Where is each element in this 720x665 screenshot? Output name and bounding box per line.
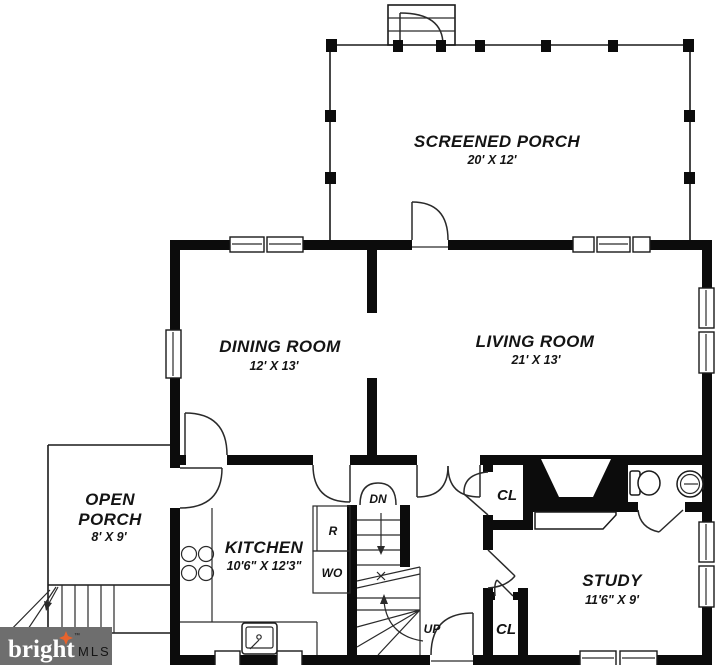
watermark-mls: MLS (78, 644, 111, 659)
stairs-up-label: UP (424, 622, 442, 636)
porch-to-living-door (412, 202, 448, 247)
dining-to-kitchen-door (313, 465, 350, 502)
open-porch-label-2: PORCH (78, 510, 142, 529)
living-room-label: LIVING ROOM (476, 332, 595, 351)
living-window-top (573, 237, 650, 252)
bathroom-door (638, 510, 683, 532)
study-window-right (699, 522, 714, 607)
toilet (630, 471, 660, 495)
porch-steps-arrow (44, 587, 58, 611)
dining-window-left (166, 330, 181, 378)
lower-closet-door (495, 580, 513, 596)
brightmls-watermark: bright ™ MLS (0, 627, 112, 665)
open-porch-outline (0, 445, 170, 656)
dining-window (230, 237, 303, 252)
watermark-trademark: ™ (74, 632, 80, 639)
fireplace-hearth (535, 512, 616, 529)
open-porch-dims: 8' X 9' (91, 530, 127, 544)
kitchen-sink (242, 623, 277, 654)
refrigerator-label: R (329, 524, 338, 538)
study-dims: 11'6" X 9' (585, 593, 640, 607)
front-door (431, 613, 473, 661)
stairs-down-label: DN (369, 492, 387, 506)
down-arrow (377, 513, 385, 555)
screened-porch-dims: 20' X 12' (466, 153, 517, 167)
living-window-right (699, 288, 714, 373)
porch-steps (388, 5, 455, 45)
open-porch-label-1: OPEN (85, 490, 135, 509)
living-room-dims: 21' X 13' (510, 353, 561, 367)
room-labels: SCREENED PORCH 20' X 12' DINING ROOM 12'… (78, 132, 643, 638)
screened-porch-label: SCREENED PORCH (414, 132, 581, 151)
dining-room-dims: 12' X 13' (249, 359, 299, 373)
study-label: STUDY (582, 571, 643, 590)
floor-plan-drawing: SCREENED PORCH 20' X 12' DINING ROOM 12'… (0, 0, 720, 665)
kitchen-fittings (180, 506, 350, 655)
study-door (488, 550, 515, 588)
wall-oven-label: WO (322, 566, 343, 580)
screened-porch-outline (325, 5, 695, 240)
study-window-bottom (580, 651, 657, 665)
upper-closet-door (464, 472, 488, 515)
openporch-to-kitchen-door (180, 468, 222, 508)
kitchen-to-dining-door (185, 413, 227, 455)
kitchen-label: KITCHEN (225, 538, 304, 557)
bathroom (630, 471, 703, 497)
bath-sink (677, 471, 703, 497)
closet-upper-label: CL (497, 487, 517, 504)
dining-room-label: DINING ROOM (219, 337, 341, 356)
up-arrow (380, 594, 423, 641)
kitchen-dims: 10'6" X 12'3" (227, 559, 303, 573)
staircase (357, 513, 423, 655)
closet-lower-label: CL (496, 621, 516, 638)
living-double-doors (417, 465, 480, 497)
floor-plan: SCREENED PORCH 20' X 12' DINING ROOM 12'… (0, 0, 720, 665)
cooktop (182, 547, 214, 581)
